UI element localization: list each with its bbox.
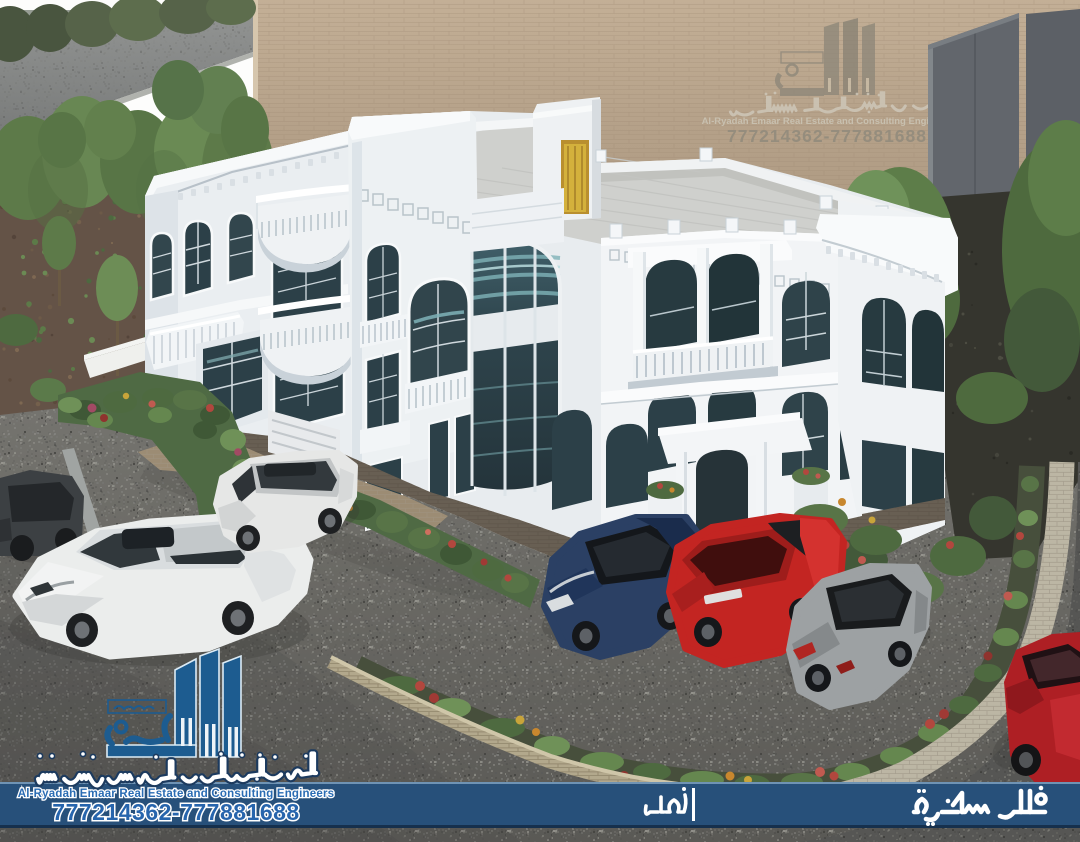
svg-text:777214362-777881688: 777214362-777881688 [727,126,927,146]
svg-text:777214362-777881688: 777214362-777881688 [52,799,299,825]
